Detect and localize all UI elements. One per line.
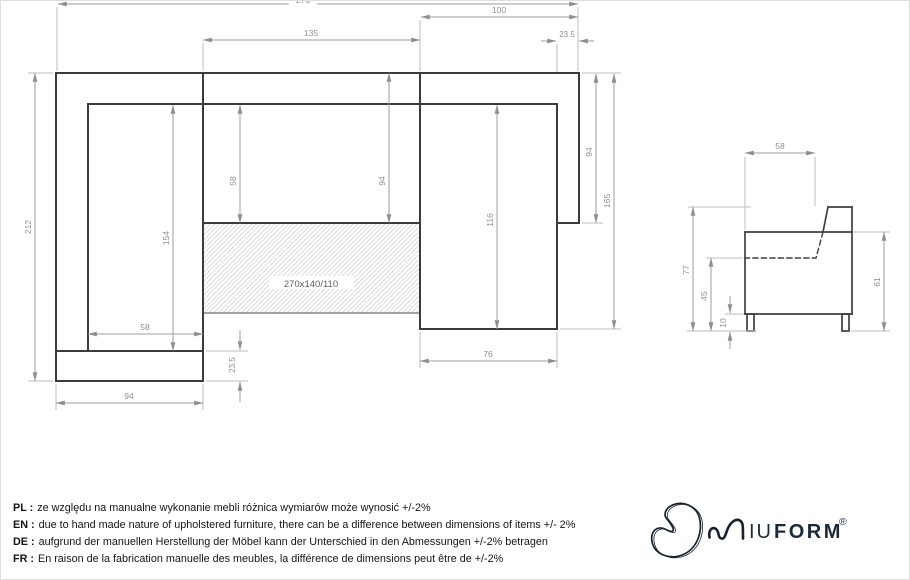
- svg-text:165: 165: [602, 194, 612, 208]
- disclaimer-line-pl: PL :ze względu na manualne wykonanie meb…: [13, 502, 431, 514]
- dim-right-arm-94: 94: [584, 74, 596, 223]
- svg-text:10: 10: [718, 318, 728, 328]
- dim-chaise-width-100: 100: [421, 5, 578, 17]
- svg-text:94: 94: [584, 147, 594, 157]
- dim-side-seat-58: 58: [745, 141, 815, 153]
- front-leg: [747, 314, 754, 331]
- dim-total-depth-212: 212: [23, 73, 35, 381]
- svg-text:94: 94: [377, 176, 387, 186]
- svg-text:23.5: 23.5: [559, 30, 575, 39]
- logo-word-bold: FORM: [774, 521, 843, 543]
- miuform-logo: IU FORM ®: [652, 503, 847, 557]
- disclaimer-block: PL :ze względu na manualne wykonanie meb…: [13, 502, 576, 565]
- side-view: 58 77 45 10 61: [681, 141, 890, 349]
- svg-text:116: 116: [485, 213, 495, 227]
- svg-text:45: 45: [699, 291, 709, 301]
- dim-right-total-165: 165: [602, 74, 614, 329]
- svg-text:61: 61: [872, 277, 882, 287]
- svg-text:23.5: 23.5: [228, 357, 237, 373]
- svg-text:58: 58: [775, 141, 785, 151]
- svg-text:212: 212: [23, 220, 33, 234]
- svg-text:154: 154: [161, 231, 171, 245]
- technical-drawing-svg: 270x140/110: [1, 1, 910, 580]
- svg-text:94: 94: [124, 391, 134, 401]
- dim-side-height-77: 77: [681, 207, 693, 331]
- svg-text:58: 58: [228, 176, 238, 186]
- drawing-sheet: 270x140/110: [0, 0, 910, 580]
- dim-seat-depth-58: 58: [228, 105, 240, 223]
- registered-trademark-icon: ®: [839, 516, 847, 528]
- wave-m-icon: [709, 520, 743, 539]
- logo-word-light: IU: [749, 521, 773, 543]
- sleeping-area-hatch: 270x140/110: [203, 223, 420, 313]
- side-extension-lines: [687, 157, 890, 331]
- svg-text:270: 270: [296, 1, 310, 5]
- plan-view: 270x140/110: [23, 1, 621, 410]
- dim-left-width-94: 94: [56, 391, 203, 403]
- dim-left-seat-58: 58: [88, 322, 203, 334]
- svg-text:76: 76: [483, 349, 493, 359]
- dim-front-strip-23-5: 23.5: [228, 330, 240, 402]
- svg-text:100: 100: [492, 5, 506, 15]
- disclaimer-line-fr: FR :En raison de la fabrication manuelle…: [13, 553, 504, 565]
- svg-text:135: 135: [304, 28, 318, 38]
- seat-level-dashed-line: [745, 232, 823, 258]
- disclaimer-line-en: EN :due to hand made nature of upholster…: [13, 519, 576, 531]
- dim-back-width-135: 135: [203, 28, 420, 40]
- svg-text:58: 58: [140, 322, 150, 332]
- dim-side-leg-10: 10: [718, 296, 730, 349]
- dim-seat-depth-with-back-94: 94: [377, 73, 389, 223]
- dim-side-arm-61: 61: [872, 232, 884, 331]
- svg-text:77: 77: [681, 265, 691, 275]
- plan-extension-lines: [28, 7, 621, 410]
- dim-inner-depth-154: 154: [161, 105, 173, 351]
- sleeping-area-label: 270x140/110: [284, 279, 338, 290]
- dim-chaise-inner-116: 116: [485, 105, 497, 329]
- back-leg: [842, 314, 849, 331]
- dim-right-arm-23-5: 23.5: [541, 30, 594, 41]
- disclaimer-line-de: DE :aufgrund der manuellen Herstellung d…: [13, 536, 548, 548]
- bean-logo-icon: [652, 503, 703, 557]
- dim-side-seat-height-45: 45: [699, 258, 711, 331]
- dim-chaise-76: 76: [420, 349, 557, 361]
- side-outline: [745, 207, 852, 331]
